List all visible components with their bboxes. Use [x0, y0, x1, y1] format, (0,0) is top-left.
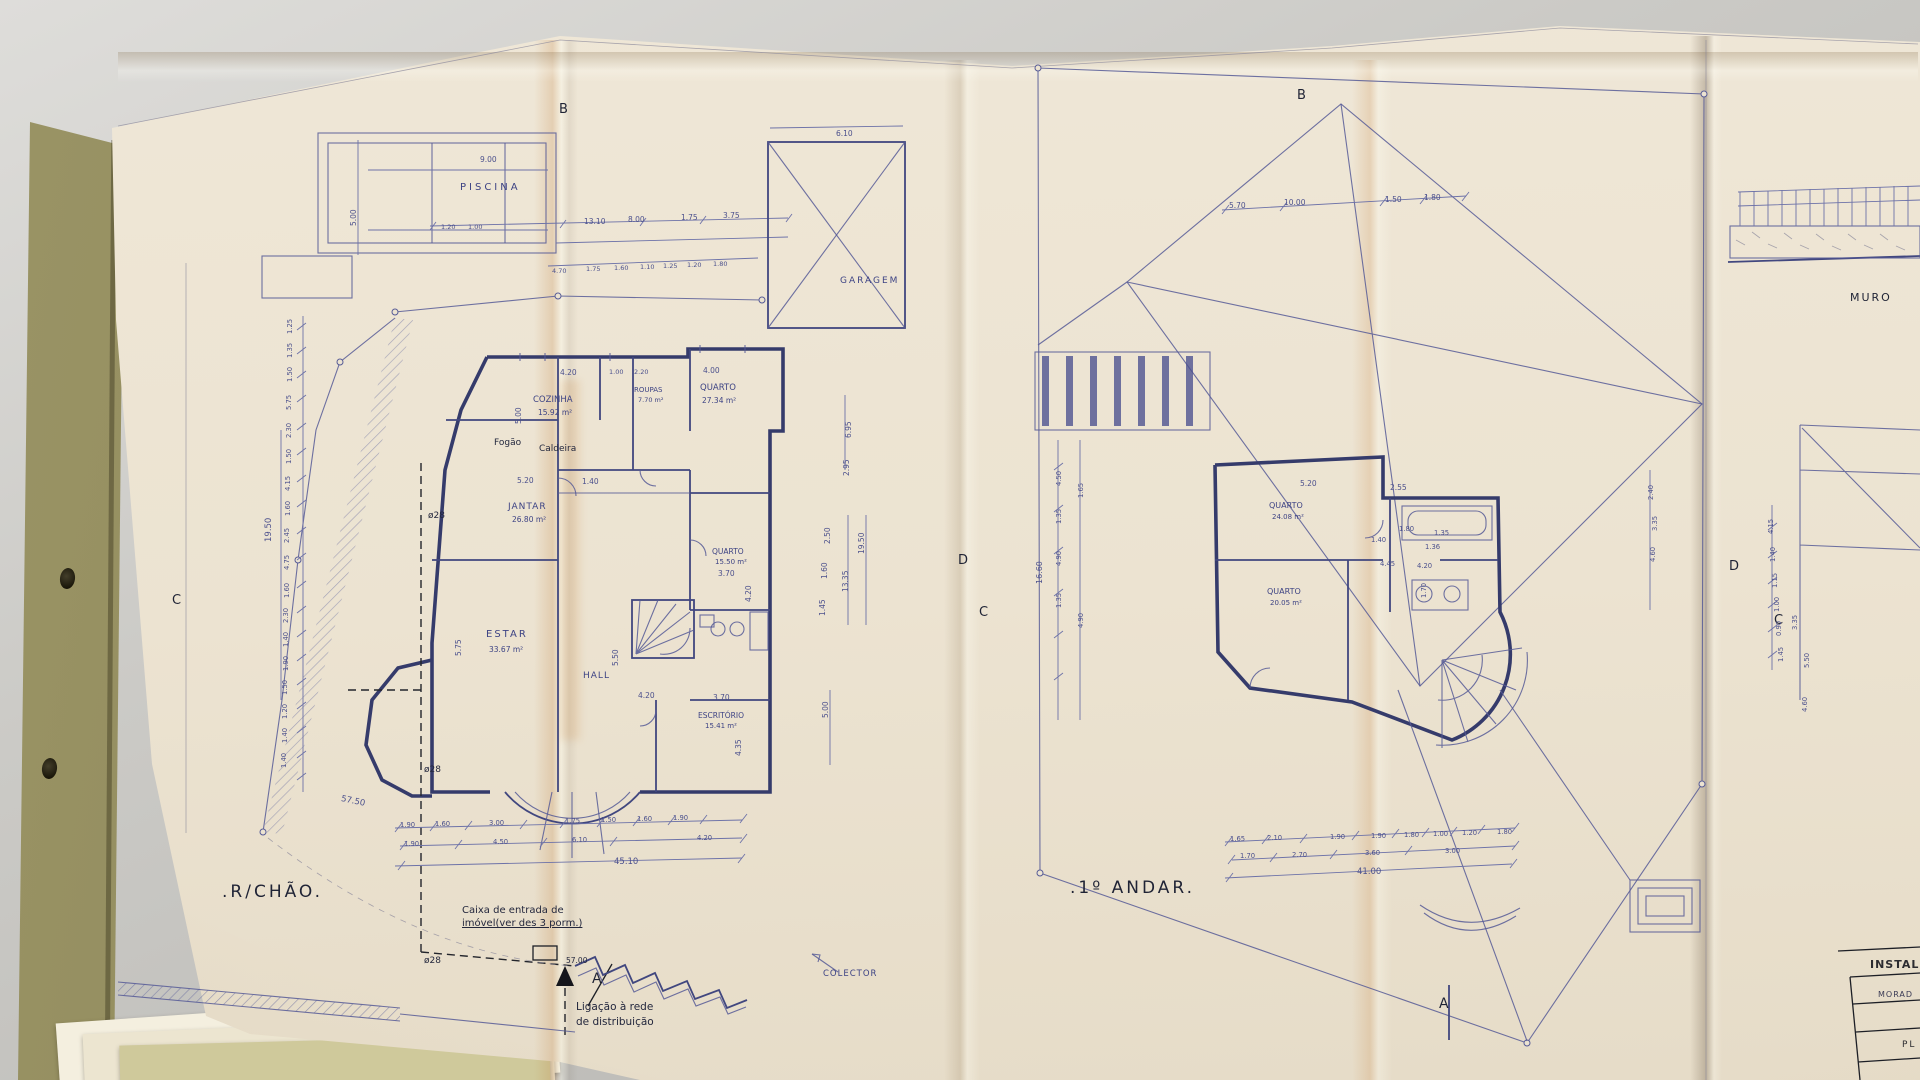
dimension-label: 13.10: [584, 218, 605, 226]
room-label-piscina: PISCINA: [460, 183, 521, 194]
dimension-label: 19.50: [858, 533, 866, 554]
dimension-label: 1.00: [1774, 597, 1781, 612]
dimension-label: 2.30: [286, 423, 293, 438]
dimension-label: 4.60: [1650, 547, 1657, 562]
plan-label: 57.00: [566, 957, 587, 965]
dimension-label: 4.45: [1380, 561, 1395, 568]
dimension-label: 1.75: [565, 818, 580, 825]
dimension-label: 3.60: [1365, 850, 1380, 857]
dimension-label: 1.60: [284, 583, 291, 598]
dimension-label: 1.00: [468, 224, 482, 231]
dimension-label: 2.30: [283, 608, 290, 623]
dimension-label: 4.20: [745, 585, 753, 602]
dimension-label: 1.36: [1425, 544, 1440, 551]
dimension-label: 13.35: [842, 571, 850, 592]
dimension-label: 16.60: [1036, 561, 1044, 584]
dimension-label: 5.00: [515, 407, 523, 424]
dimension-label: 3.00: [1445, 848, 1460, 855]
dimension-label: 2.95: [843, 459, 851, 476]
dimension-label: 1.50: [287, 367, 294, 382]
room-label-estar: ESTAR: [486, 630, 528, 641]
dimension-label: 5.75: [455, 639, 463, 656]
dimension-label: 1.80: [1404, 832, 1419, 839]
dimension-label: 1.50: [1385, 196, 1402, 204]
dimension-label: 1.60: [285, 501, 292, 516]
floor-label-ground: .R/CHÃO.: [222, 884, 323, 902]
dimension-label: 4.70: [552, 268, 566, 275]
room-label-jantar: JANTAR: [508, 503, 547, 512]
dimension-label: 4.20: [1417, 563, 1432, 570]
dimension-label: 1.40: [283, 632, 290, 647]
dimension-label: 5.70: [1229, 202, 1246, 210]
dimension-label: 1.50: [282, 680, 289, 695]
dimension-label: 0.90: [1776, 621, 1783, 636]
dimension-label: 2.50: [824, 527, 832, 544]
dimension-label: 1.90: [673, 815, 688, 822]
dimension-label: 45.10: [614, 858, 638, 867]
dimension-label: 41.00: [1357, 868, 1381, 877]
dimension-label: 1.20: [1462, 830, 1477, 837]
dimension-label: 10.00: [1284, 199, 1305, 207]
dimension-label: 1.25: [663, 263, 677, 270]
dimension-label: 1.40: [282, 728, 289, 743]
dimension-label: 3.35: [1792, 615, 1799, 630]
plan-label: 24.08 m²: [1272, 514, 1304, 521]
room-label-cozinha: COZINHA: [533, 396, 573, 405]
dimension-label: 1.20: [282, 704, 289, 719]
room-label-quarto-2: QUARTO: [712, 548, 744, 556]
dimension-label: 1.50: [601, 817, 616, 824]
dimension-label: 1.65: [1078, 483, 1085, 498]
dimension-label: 1.60: [821, 562, 829, 579]
dimension-label: 1.80: [1399, 526, 1414, 533]
dimension-label: 1.40: [1371, 537, 1386, 544]
dimension-label: 1.40: [281, 753, 288, 768]
dimension-label: 6.10: [572, 837, 587, 844]
dimension-label: 4.35: [735, 739, 743, 756]
dimension-label: 3.75: [723, 212, 740, 220]
note-ligacao-line1: Ligação à rede: [576, 1002, 653, 1013]
room-label-quarto-1: QUARTO: [700, 384, 736, 393]
dimension-label: 1.35: [1434, 530, 1449, 537]
title-block-header: INSTAL: [1870, 958, 1919, 971]
note-diameter-1: ø28: [428, 512, 445, 521]
label-colector: COLECTOR: [823, 970, 877, 979]
title-block: INSTAL MORAD PL: [1838, 948, 1920, 1080]
dimension-label: 4.15: [1768, 519, 1775, 534]
dimension-label: 2.20: [634, 369, 648, 376]
dimension-label: 4.50: [493, 839, 508, 846]
dimension-label: 6.95: [845, 421, 853, 438]
dimension-label: 1.70: [1421, 583, 1428, 598]
dimension-label: 4.00: [703, 367, 720, 375]
dimension-label: 2.10: [1267, 835, 1282, 842]
dimension-label: 3.70: [713, 694, 730, 702]
dimension-label: 1.35: [287, 343, 294, 358]
dimension-label: 1.90: [1330, 834, 1345, 841]
dimension-label: 2.55: [1390, 484, 1407, 492]
dimension-label: 1.65: [1230, 836, 1245, 843]
dimension-label: 1.00: [609, 369, 623, 376]
dimension-label: 9.00: [480, 156, 497, 164]
dimension-label: 2.70: [1292, 852, 1307, 859]
dimension-label: 1.75: [681, 214, 698, 222]
dimension-label: 3.35: [1652, 516, 1659, 531]
room-label-escritorio: ESCRITÓRIO: [698, 712, 744, 720]
section-marker-c-right: C: [979, 606, 991, 620]
room-label-hall: HALL: [583, 672, 610, 681]
dimension-label: 5.50: [1804, 653, 1811, 668]
dimension-label: 1.90: [283, 656, 290, 671]
dimension-label: 1.80: [1424, 194, 1441, 202]
dimension-label: 4.75: [284, 555, 291, 570]
dimension-label: 1.45: [1778, 647, 1785, 662]
dimension-label: 1.80: [713, 261, 727, 268]
dimension-label: 4.20: [697, 835, 712, 842]
room-label-quarto-3: QUARTO: [1269, 502, 1303, 510]
dimension-label: 5.00: [822, 701, 830, 718]
dimension-label: 5.50: [612, 649, 620, 666]
note-caixa-line2: imóvel(ver des 3 porm.): [462, 919, 582, 930]
note-diameter-2: ø28: [424, 766, 441, 775]
dimension-label: 1.90: [400, 822, 415, 829]
dimension-label: 1.90: [1371, 833, 1386, 840]
room-label-roupas: ROUPAS: [634, 387, 663, 394]
dimension-label: 5.00: [350, 209, 358, 226]
dimension-label: 6.10: [836, 130, 853, 138]
dimension-label: 1.10: [640, 264, 654, 271]
dimension-label: 1.60: [435, 821, 450, 828]
section-marker-a-right: A: [1439, 997, 1452, 1012]
plan-label: 15.50 m²: [715, 559, 747, 566]
plan-label: 33.67 m²: [489, 646, 523, 654]
dimension-label: 1.00: [1433, 831, 1448, 838]
note-ligacao-line2: de distribuição: [576, 1017, 654, 1028]
plan-label: 7.70 m²: [638, 397, 663, 404]
dimension-label: 4.20: [560, 369, 577, 377]
dimension-label: 1.50: [286, 449, 293, 464]
floor-label-first: .1º ANDAR.: [1070, 880, 1195, 898]
note-caixa-line1: Caixa de entrada de: [462, 906, 564, 917]
dimension-label: 5.75: [286, 395, 293, 410]
dimension-label: 8.00: [628, 216, 645, 224]
plan-label: 26.80 m²: [512, 516, 546, 524]
note-caldeira: Caldeira: [539, 445, 576, 454]
dimension-label: 1.35: [1056, 509, 1063, 524]
dimension-label: 2.40: [1648, 485, 1655, 500]
label-muro: MURO: [1850, 292, 1892, 304]
dimension-label: 1.90: [404, 841, 419, 848]
section-marker-d-left: D: [958, 554, 971, 568]
dimension-label: 4.60: [1802, 697, 1809, 712]
plan-label: 27.34 m²: [702, 397, 736, 405]
plan-label: 20.05 m²: [1270, 600, 1302, 607]
dimension-label: 1.70: [1240, 853, 1255, 860]
dimension-label: 1.40: [1770, 547, 1777, 562]
dimension-label: 1.35: [1056, 593, 1063, 608]
section-marker-a-left: A: [592, 972, 605, 987]
photographed-blueprint-scene: PISCINA9.005.001.201.0013.108.001.753.75…: [0, 0, 1920, 1080]
note-fogao: Fogão: [494, 439, 521, 448]
dimension-label: 3.70: [718, 570, 735, 578]
title-block-row: MORAD: [1878, 990, 1913, 999]
dimension-label: 1.60: [614, 265, 628, 272]
dimension-label: 4.90: [1056, 551, 1063, 566]
dimension-label: 5.20: [1300, 480, 1317, 488]
dimension-label: 1.25: [287, 319, 294, 334]
section-marker-b-left: B: [559, 103, 571, 117]
dimension-label: 3.00: [489, 820, 504, 827]
dimension-label: 1.20: [687, 262, 701, 269]
plan-label: 15.41 m²: [705, 723, 737, 730]
dimension-label: 1.75: [586, 266, 600, 273]
dimension-label: 2.45: [284, 528, 291, 543]
dimension-label: 1.80: [1497, 829, 1512, 836]
room-label-quarto-4: QUARTO: [1267, 588, 1301, 596]
section-marker-b-right: B: [1297, 89, 1309, 103]
dimension-label: 1.60: [637, 816, 652, 823]
dimension-label: 4.15: [285, 476, 292, 491]
note-diameter-3: ø28: [424, 957, 441, 966]
dimension-label: 4.20: [638, 692, 655, 700]
section-marker-d-right: D: [1729, 560, 1742, 574]
dimension-label: 1.45: [819, 599, 827, 616]
title-block-row: PL: [1902, 1040, 1916, 1050]
dimension-label: 19.50: [265, 518, 274, 542]
dimension-label: 1.20: [441, 224, 455, 231]
dimension-label: 4.50: [1056, 471, 1063, 486]
room-label-garagem: GARAGEM: [840, 277, 899, 286]
dimension-label: 4.90: [1078, 613, 1085, 628]
section-marker-c-left: C: [172, 594, 184, 608]
dimension-label: 5.20: [517, 477, 534, 485]
dimension-label: 1.15: [1772, 573, 1779, 588]
dimension-label: 1.40: [582, 478, 599, 486]
plan-label: 15.92 m²: [538, 409, 572, 417]
